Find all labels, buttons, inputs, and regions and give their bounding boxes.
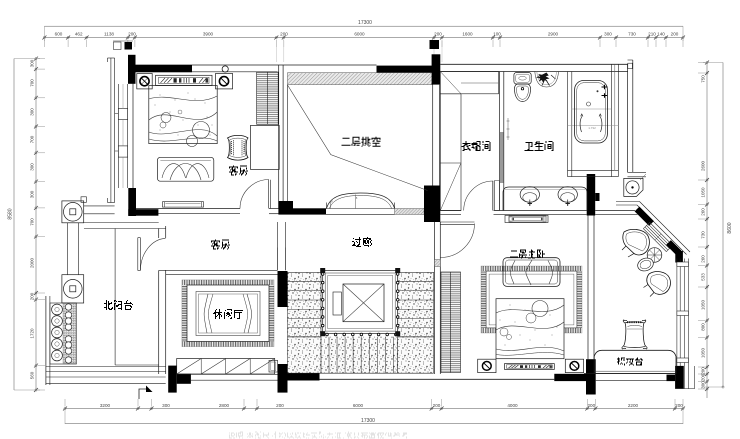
svg-text:100: 100 [493,32,501,37]
svg-text:200: 200 [276,403,284,408]
svg-text:200: 200 [433,403,441,408]
svg-text:17300: 17300 [358,20,372,26]
svg-text:6000: 6000 [354,32,365,37]
svg-text:700: 700 [30,79,35,87]
svg-text:3900: 3900 [203,32,214,37]
svg-text:700: 700 [30,218,35,226]
svg-text:6000: 6000 [353,403,364,408]
svg-text:1050: 1050 [701,299,706,310]
svg-text:3200: 3200 [100,403,111,408]
svg-text:1050: 1050 [701,187,706,198]
svg-text:1720: 1720 [30,328,35,339]
svg-text:200: 200 [701,367,706,375]
svg-text:300: 300 [30,59,35,67]
svg-text:300: 300 [701,381,706,389]
svg-text:300: 300 [30,163,35,171]
svg-text:1.732: 1.732 [588,126,596,130]
svg-text:300: 300 [162,403,170,408]
svg-text:8600: 8600 [727,222,733,233]
svg-text:750: 750 [701,75,706,83]
svg-text:200: 200 [675,403,683,408]
svg-text:2900: 2900 [548,32,559,37]
svg-text:200: 200 [280,32,288,37]
svg-text:2800: 2800 [219,403,230,408]
svg-text:2200: 2200 [628,403,639,408]
svg-text:140: 140 [657,32,665,37]
svg-text:260: 260 [701,255,706,263]
svg-text:700: 700 [30,135,35,143]
svg-text:8580: 8580 [8,208,14,219]
svg-text:200: 200 [587,403,595,408]
svg-text:2000: 2000 [30,257,35,268]
svg-text:730: 730 [628,32,636,37]
svg-text:560: 560 [30,371,35,379]
svg-text:300: 300 [30,108,35,116]
svg-text:1600: 1600 [462,32,473,37]
svg-text:300: 300 [30,190,35,198]
svg-text:462: 462 [75,32,83,37]
svg-text:2600: 2600 [701,160,706,171]
svg-text:200: 200 [671,32,679,37]
svg-text:210: 210 [648,32,656,37]
svg-text:600: 600 [55,32,63,37]
svg-text:200: 200 [128,32,136,37]
svg-text:1138: 1138 [104,32,114,37]
svg-text:533: 533 [701,273,706,281]
svg-text:4000: 4000 [507,403,518,408]
svg-text:300: 300 [604,32,612,37]
svg-text:17300: 17300 [361,418,375,424]
svg-text:200: 200 [434,32,442,37]
svg-text:800: 800 [701,323,706,331]
svg-text:8: 8 [356,196,358,200]
svg-text:200: 200 [701,373,706,381]
svg-text:730: 730 [701,231,706,239]
svg-text:1050: 1050 [701,347,706,358]
svg-text:260: 260 [701,208,706,216]
svg-text:200: 200 [30,292,35,300]
